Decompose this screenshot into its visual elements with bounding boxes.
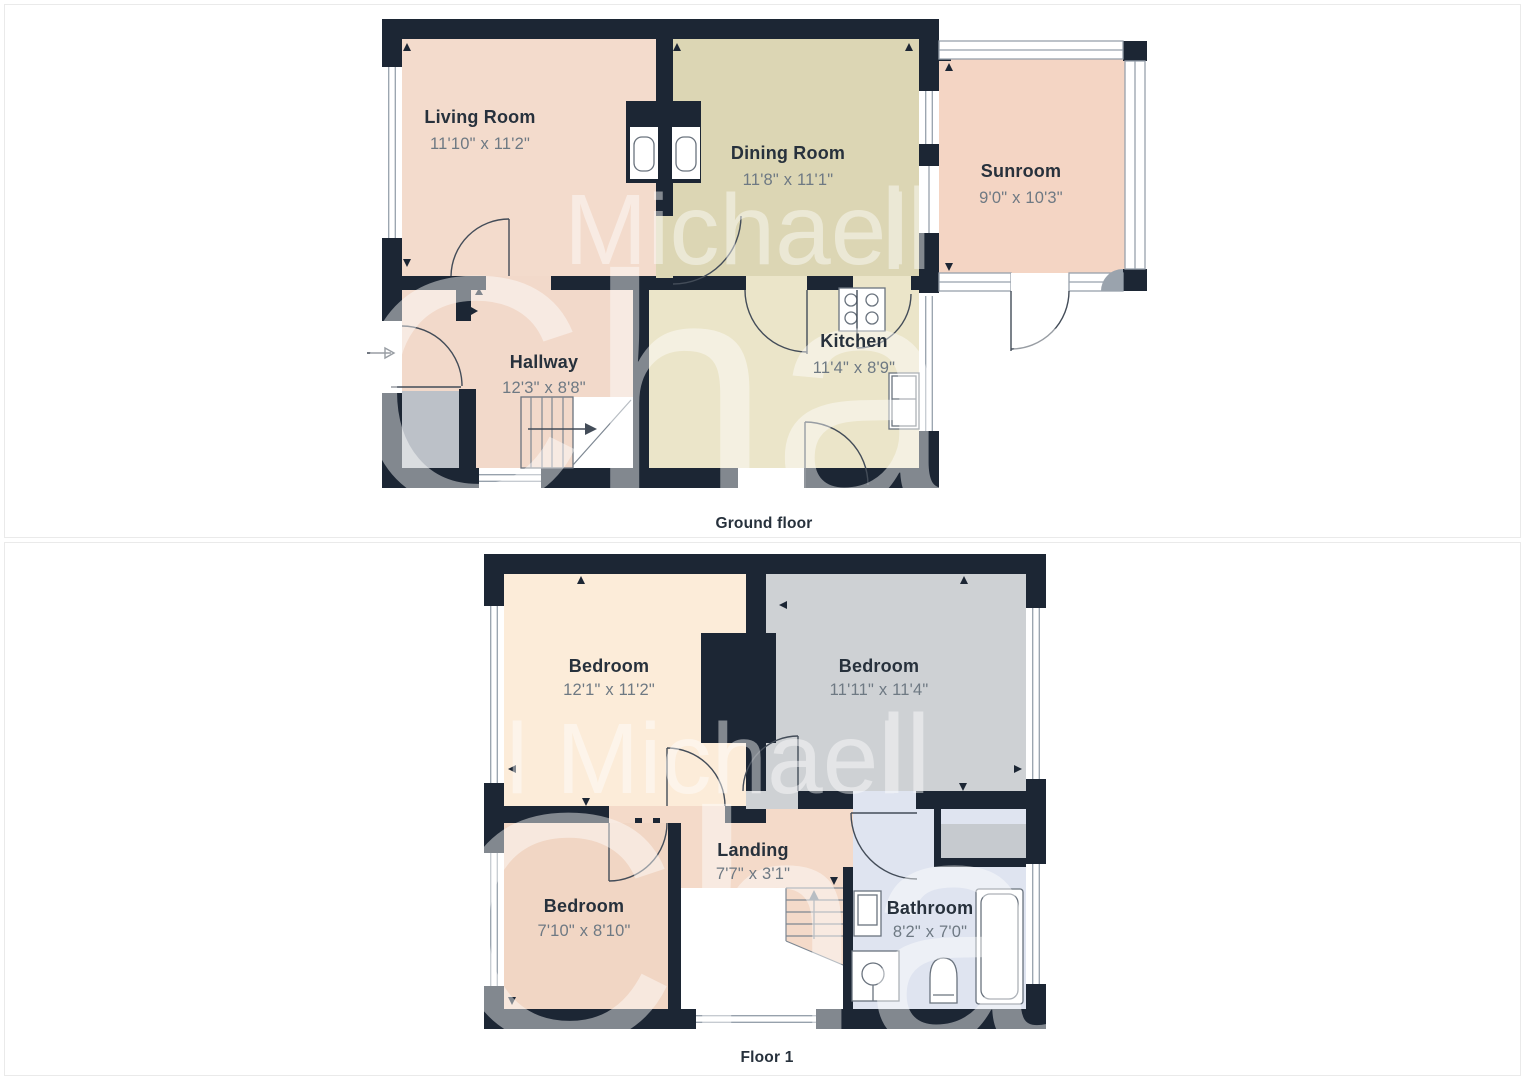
room-label-hallway: Hallway xyxy=(510,352,578,372)
floor-1-plan: l Michael ll Chandler Bedroom Bedroom Be… xyxy=(5,543,1520,1075)
floor-1-panel: l Michael ll Chandler Bedroom Bedroom Be… xyxy=(4,542,1521,1076)
room-label-bedroom-2: Bedroom xyxy=(839,656,919,676)
room-dims-living-room: 11'10" x 11'2" xyxy=(430,135,530,153)
room-label-sunroom: Sunroom xyxy=(981,161,1061,181)
room-dims-bedroom-2: 11'11" x 11'4" xyxy=(830,681,929,699)
ground-floor-caption: Ground floor xyxy=(715,515,812,532)
ground-floor-panel: Michael ll Chandler Living Room Dining R… xyxy=(4,4,1521,538)
room-dims-dining-room: 11'8" x 11'1" xyxy=(743,171,834,189)
room-label-bathroom: Bathroom xyxy=(887,898,974,918)
room-label-kitchen: Kitchen xyxy=(820,331,887,351)
ground-floor-plan: Michael ll Chandler Living Room Dining R… xyxy=(5,5,1520,537)
room-dims-kitchen: 11'4" x 8'9" xyxy=(813,359,896,377)
room-dims-bedroom-1: 12'1" x 11'2" xyxy=(563,681,655,699)
floor-1-caption: Floor 1 xyxy=(740,1049,793,1066)
room-dims-bedroom-3: 7'10" x 8'10" xyxy=(537,922,630,940)
room-dims-landing: 7'7" x 3'1" xyxy=(716,865,790,883)
watermark-floor1: l Michael ll Chandler xyxy=(441,692,1520,1075)
room-label-landing: Landing xyxy=(717,840,788,860)
floorplan-page: Michael ll Chandler Living Room Dining R… xyxy=(0,0,1527,1080)
room-dims-sunroom: 9'0" x 10'3" xyxy=(979,189,1063,207)
room-label-living-room: Living Room xyxy=(424,107,535,127)
room-dims-bathroom: 8'2" x 7'0" xyxy=(893,923,967,941)
room-label-bedroom-1: Bedroom xyxy=(569,656,649,676)
watermark-text: Chandler xyxy=(349,207,1520,537)
room-dims-hallway: 12'3" x 8'8" xyxy=(502,379,586,397)
room-label-dining-room: Dining Room xyxy=(731,143,845,163)
room-label-bedroom-3: Bedroom xyxy=(544,896,624,916)
